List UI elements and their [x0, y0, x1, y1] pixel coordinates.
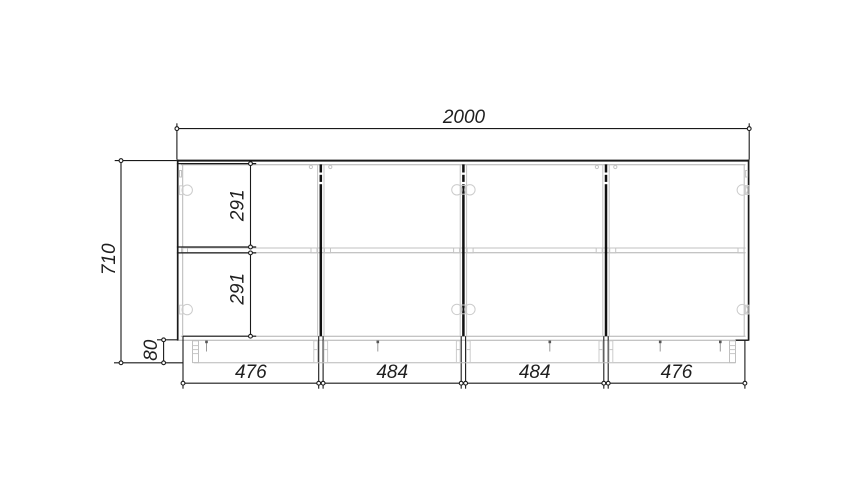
- svg-text:2000: 2000: [442, 107, 486, 128]
- svg-text:710: 710: [99, 243, 120, 275]
- svg-text:476: 476: [235, 362, 267, 383]
- svg-text:476: 476: [661, 362, 693, 383]
- svg-text:484: 484: [376, 362, 408, 383]
- svg-text:484: 484: [519, 362, 551, 383]
- svg-text:80: 80: [141, 339, 162, 361]
- svg-text:291: 291: [228, 273, 249, 306]
- svg-text:291: 291: [228, 189, 249, 222]
